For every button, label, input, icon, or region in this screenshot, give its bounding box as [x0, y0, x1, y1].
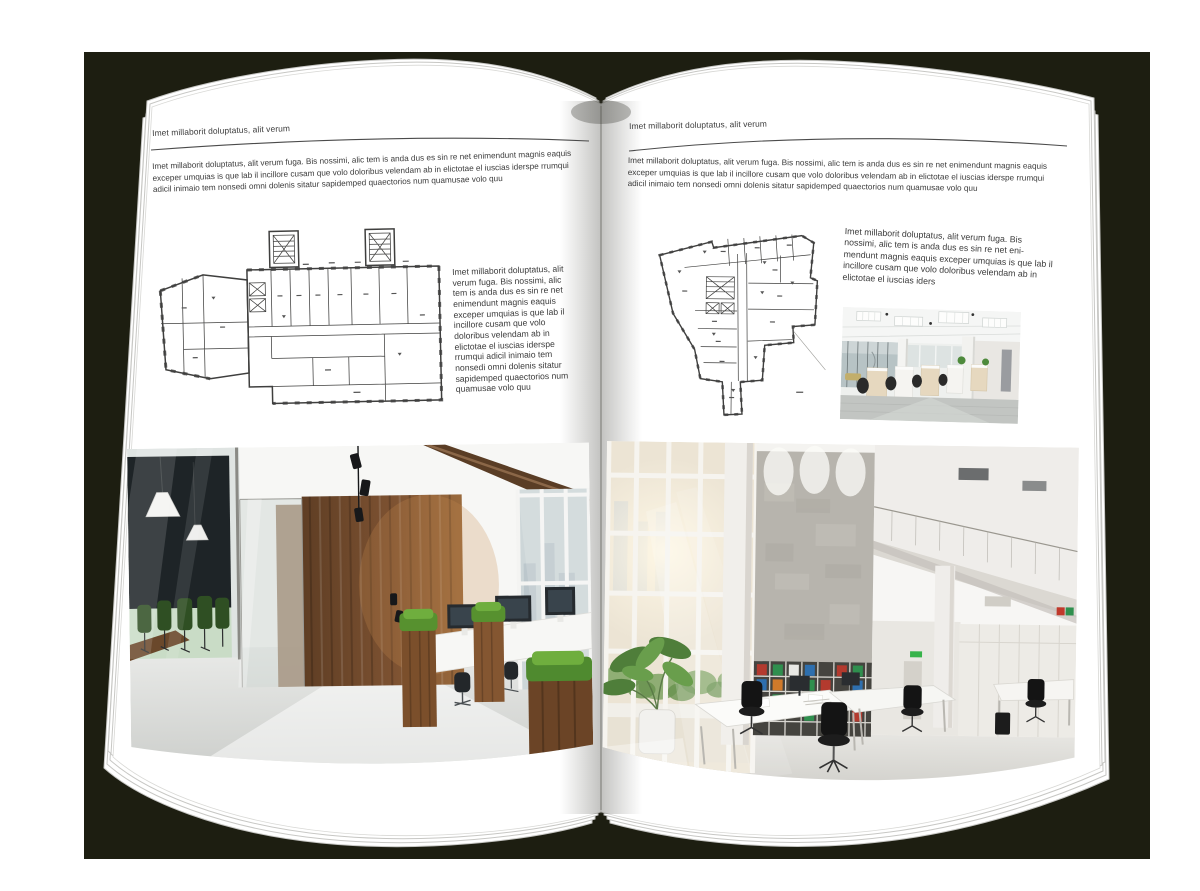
left-floorplan-labels: [181, 260, 427, 396]
glass-partition: [236, 499, 305, 688]
small-office-photo: [840, 307, 1021, 424]
left-floorplan: [150, 222, 446, 420]
left-floorplan-walls: [159, 228, 442, 406]
right-floorplan-rooms: [683, 233, 815, 414]
right-page-intro: Imet millaborit doluptatus, alit verum f…: [628, 155, 1052, 196]
right-office-photo: [602, 441, 1079, 798]
exit-sign: [910, 651, 922, 657]
concrete-wall: [754, 445, 875, 665]
small-photo-ceiling: [842, 307, 1021, 346]
left-floorplan-rooms: [159, 232, 441, 406]
meeting-room-glass: [127, 447, 242, 661]
right-plan-caption: Imet millaborit doluptatus, alit verum f…: [842, 226, 1055, 293]
right-floorplan-labels: [676, 243, 805, 399]
left-plan-caption: Imet millaborit doluptatus, alit verum f…: [452, 263, 575, 395]
right-floorplan: [641, 220, 833, 424]
brochure-mockup: Imet millaborit doluptatus, alit verum I…: [0, 0, 1200, 891]
right-floorplan-leader: [793, 332, 825, 370]
left-office-photo: [127, 443, 593, 769]
trash-bin: [995, 712, 1010, 734]
safety-sign-green: [1066, 607, 1074, 615]
safety-sign-red: [1057, 607, 1065, 615]
